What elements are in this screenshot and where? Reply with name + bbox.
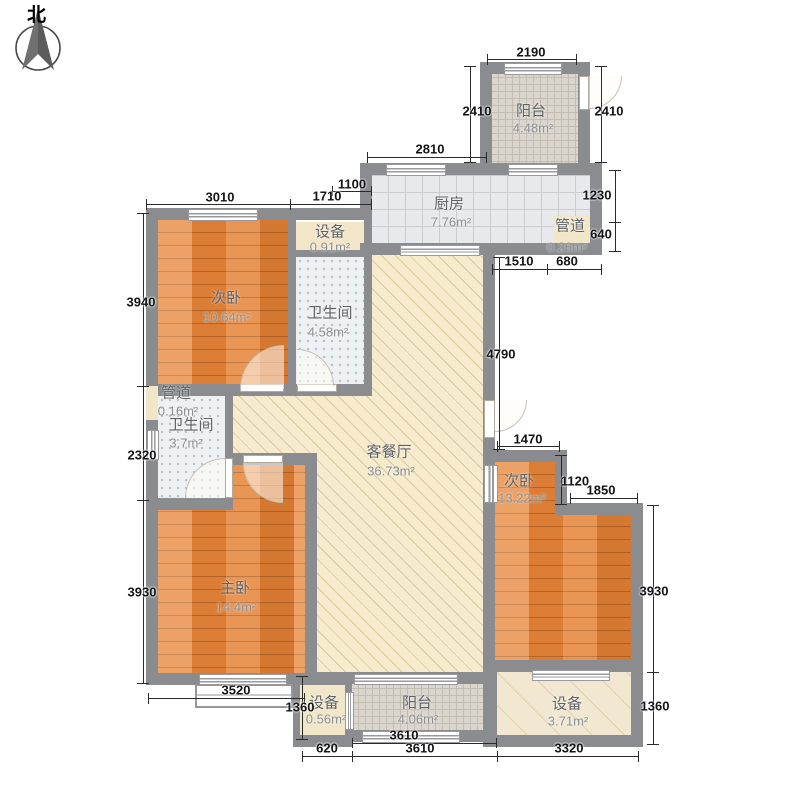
dimension-tick [555,504,567,505]
dimension-line [570,498,638,499]
dimension-label: 1120 [561,474,589,489]
room-area-label: 0.16m² [158,404,198,419]
dimension-label: 3930 [640,584,669,599]
dimension-tick [595,162,607,163]
dimension-label: 2410 [463,104,492,119]
window [345,692,354,730]
door [225,458,233,498]
dimension-tick [547,264,548,275]
room-area-label: 4.06m² [398,712,438,727]
dimension-tick [647,505,659,506]
wall [305,453,317,685]
room-area-label: 0.26m² [547,240,587,255]
dimension-tick [371,186,372,196]
dimension-tick [296,676,308,677]
room-name-label: 厨房 [434,193,464,214]
dimension-tick [570,493,571,504]
dimension-tick [609,170,621,171]
dimension-tick [609,251,621,252]
dimension-tick [559,441,560,452]
window [400,245,480,256]
dimension-label: 3940 [127,295,156,310]
dimension-tick [492,264,493,275]
dimension-tick [148,693,149,704]
room-area-label: 3.7m² [169,436,202,451]
dimension-label: 620 [316,741,338,756]
dimension-label: 1510 [505,254,534,269]
dimension-label: 640 [590,227,612,242]
dimension-tick [493,449,505,450]
door [243,455,283,463]
wall [555,503,643,515]
door [484,400,495,438]
room-name-label: 主卧 [220,577,250,598]
dimension-tick [464,162,476,163]
room-name-label: 次卧 [211,287,241,308]
room-area-label: 10.64m² [203,310,251,325]
dimension-label: 3010 [206,190,235,205]
room-name-label: 卫生间 [307,302,352,323]
dimension-tick [497,441,498,452]
room-area-label: 7.76m² [431,215,471,230]
north-label: 北 [27,0,46,27]
wall [288,212,296,392]
room-name-label: 管道 [555,215,585,236]
dimension-tick [302,751,303,762]
window [354,674,458,685]
room-name-label: 设备 [315,221,345,242]
north-compass: 北 [0,0,80,80]
dimension-tick [487,54,488,65]
dimension-label: 3610 [406,741,435,756]
dimension-label: 2190 [517,45,546,60]
dimension-label: 3320 [555,741,584,756]
dimension-tick [146,199,147,210]
dimension-line [148,698,305,699]
dimension-tick [290,199,291,210]
dimension-label: 1100 [338,177,366,192]
window [504,63,562,75]
dimension-tick [137,213,149,214]
dimension-tick [486,152,487,163]
dimension-tick [555,455,567,456]
dimension-label: 1230 [583,188,612,203]
dimension-tick [576,54,577,65]
room-area-label: 13.22m² [498,491,546,506]
floor-plan: 北 主卧14.4m²阳台4.48m²厨房7.76m²管道0.26m²次卧10.6… [0,0,800,800]
dimension-label: 1360 [641,699,670,714]
dimension-tick [371,199,372,210]
dimension-tick [601,264,602,275]
dimension-tick [493,257,505,258]
wall [146,498,233,510]
dimension-tick [497,751,498,762]
room-name-label: 客餐厅 [366,441,411,462]
room-name-label: 管道 [161,382,191,403]
dimension-tick [638,751,639,762]
wall [490,672,497,742]
dimension-tick [137,386,149,387]
window [386,164,446,176]
dimension-tick [352,751,353,762]
dimension-label: 1850 [587,483,616,498]
dimension-tick [647,672,659,673]
room-name-label: 次卧 [504,470,534,491]
door [579,76,589,110]
room-area-label: 3.71m² [548,714,588,729]
window [532,670,610,681]
room-name-label: 设备 [552,693,582,714]
room-duct-left [146,386,158,420]
dimension-label: 680 [556,254,578,269]
dimension-tick [609,222,621,223]
room-name-label: 阳台 [516,100,546,121]
dimension-tick [352,738,353,748]
dimension-line [615,170,616,252]
dimension-label: 4790 [487,347,516,362]
dimension-tick [464,66,476,67]
window [508,164,558,176]
room-area-label: 0.91m² [310,240,350,255]
dimension-tick [137,683,149,684]
dimension-tick [647,744,659,745]
room-area-label: 4.58m² [308,325,348,340]
dimension-label: 2810 [416,142,445,157]
dimension-tick [637,493,638,504]
dimension-tick [595,66,607,67]
dimension-line [146,204,372,205]
room-area-label: 4.48m² [513,121,553,136]
wall [146,208,372,220]
window [484,465,498,503]
dimension-label: 3520 [222,683,251,698]
dimension-tick [296,739,308,740]
room-name-label: 阳台 [402,692,432,713]
dimension-tick [367,152,368,163]
dimension-label: 2320 [128,448,157,463]
room-area-label: 36.73m² [367,464,415,479]
dimension-label: 1360 [286,700,315,715]
dimension-label: 1470 [514,432,543,447]
window [188,209,258,221]
dimension-label: 2410 [595,104,624,119]
dimension-line [367,157,487,158]
dimension-tick [496,738,497,748]
dimension-label: 3930 [128,585,157,600]
dimension-tick [137,500,149,501]
room-area-label: 14.4m² [216,600,256,615]
